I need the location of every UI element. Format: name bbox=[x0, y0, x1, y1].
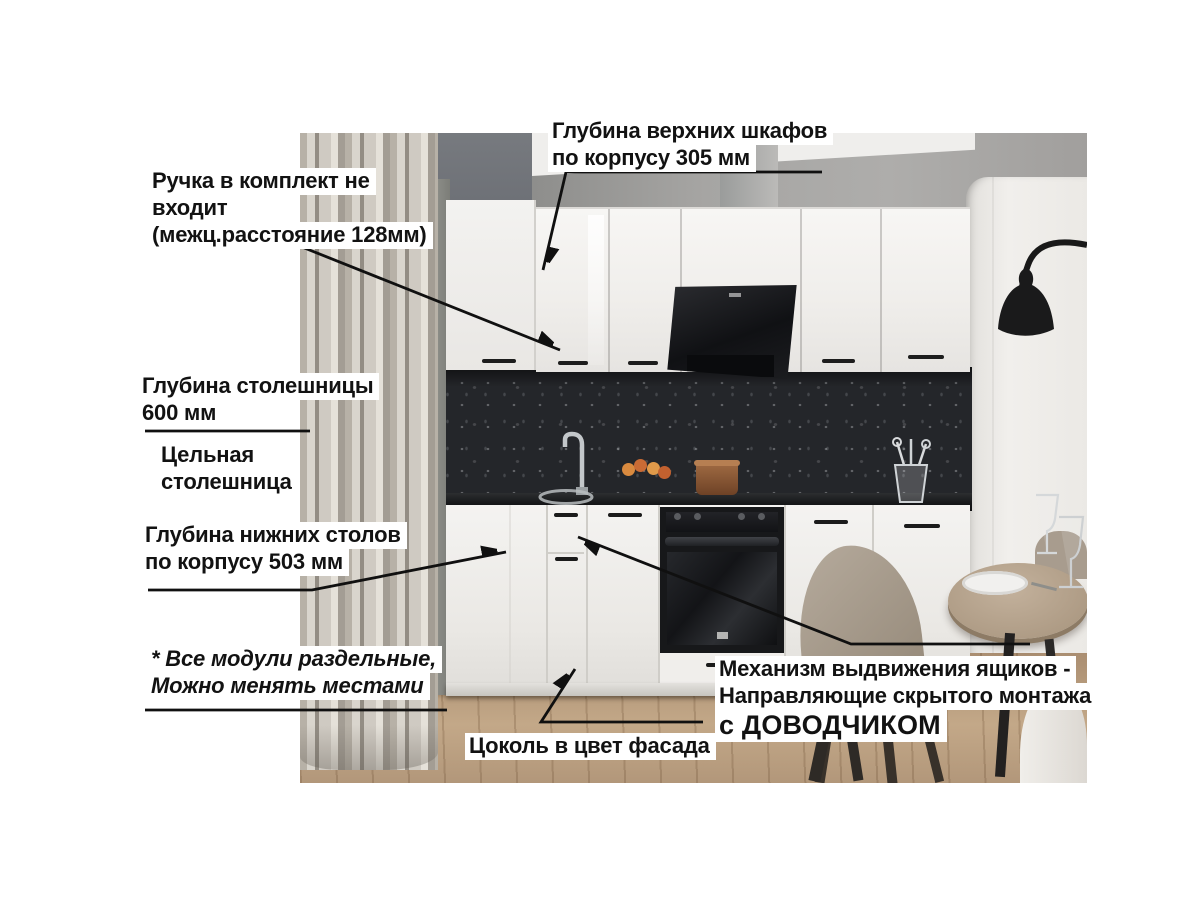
door-gap bbox=[800, 209, 802, 372]
label-handle-note: Ручка в комплект не входит (межц.расстоя… bbox=[148, 168, 433, 249]
cooking-pot bbox=[696, 463, 738, 495]
range-hood bbox=[666, 285, 798, 379]
label-line: Направляющие скрытого монтажа bbox=[715, 683, 1097, 710]
label-line: Глубина нижних столов bbox=[141, 522, 407, 549]
door-handle bbox=[608, 513, 642, 517]
utensil-holder bbox=[876, 435, 946, 505]
fruit bbox=[634, 459, 647, 472]
label-plinth-note: Цоколь в цвет фасада bbox=[465, 733, 716, 760]
door-handle bbox=[904, 524, 940, 528]
wine-glasses bbox=[1032, 491, 1087, 613]
label-line: Цоколь в цвет фасада bbox=[465, 733, 716, 760]
oven-logo bbox=[717, 632, 728, 639]
label-line: (межц.расстояние 128мм) bbox=[148, 222, 433, 249]
lamp-shade bbox=[998, 268, 1054, 336]
label-line: по корпусу 503 мм bbox=[141, 549, 349, 576]
label-line: * Все модули раздельные, bbox=[147, 646, 442, 673]
label-line: Глубина верхних шкафов bbox=[548, 118, 833, 145]
label-line: входит bbox=[148, 195, 233, 222]
upper-door-handle bbox=[822, 359, 855, 363]
annotated-kitchen-figure: Глубина верхних шкафов по корпусу 305 мм… bbox=[0, 0, 1200, 900]
hood-logo bbox=[729, 293, 741, 297]
upper-door-handle bbox=[628, 361, 658, 365]
label-solid-countertop: Цельная столешница bbox=[157, 442, 298, 496]
drawer-handle bbox=[555, 557, 578, 561]
upper-door-handle bbox=[908, 355, 944, 359]
fruit bbox=[658, 466, 671, 479]
sink-faucet bbox=[536, 423, 616, 505]
cabinet-seam bbox=[586, 505, 588, 683]
door-gap bbox=[880, 209, 882, 372]
cabinet-seam bbox=[546, 505, 548, 683]
door-gap bbox=[608, 209, 610, 372]
label-line: 600 мм bbox=[138, 400, 222, 427]
label-line: Глубина столешницы bbox=[138, 373, 379, 400]
label-line: с ДОВОДЧИКОМ bbox=[715, 710, 947, 742]
curtain-hem bbox=[300, 725, 438, 770]
oven-knob bbox=[674, 513, 681, 520]
gloss-reflection bbox=[588, 215, 604, 365]
drawer-handle bbox=[554, 513, 578, 517]
label-base-cabinet-depth: Глубина нижних столов по корпусу 503 мм bbox=[141, 522, 407, 576]
cabinet-seam bbox=[509, 505, 511, 683]
oven-knob bbox=[694, 513, 701, 520]
oven-handle bbox=[665, 537, 779, 546]
label-drawer-mechanism: Механизм выдвижения ящиков - Направляющи… bbox=[715, 656, 1097, 742]
oven bbox=[660, 507, 784, 653]
label-countertop-depth: Глубина столешницы 600 мм bbox=[138, 373, 379, 427]
label-line: по корпусу 305 мм bbox=[548, 145, 756, 172]
label-line: столешница bbox=[157, 469, 298, 496]
door-handle bbox=[814, 520, 848, 524]
oven-knob bbox=[758, 513, 765, 520]
label-line: Механизм выдвижения ящиков - bbox=[715, 656, 1076, 683]
fruit-bowl bbox=[614, 459, 678, 493]
upper-door-handle bbox=[482, 359, 516, 363]
label-modules-note: * Все модули раздельные, Можно менять ме… bbox=[147, 646, 442, 700]
label-line: Ручка в комплект не bbox=[148, 168, 376, 195]
drawer-gap bbox=[548, 552, 584, 554]
upper-door-handle bbox=[558, 361, 588, 365]
pot-rim bbox=[694, 460, 740, 466]
label-line: Цельная bbox=[157, 442, 260, 469]
oven-knob bbox=[738, 513, 745, 520]
label-upper-cabinet-depth: Глубина верхних шкафов по корпусу 305 мм bbox=[548, 118, 833, 172]
label-line: Можно менять местами bbox=[147, 673, 430, 700]
upper-corner-cabinet bbox=[446, 200, 536, 370]
plate bbox=[962, 571, 1028, 595]
